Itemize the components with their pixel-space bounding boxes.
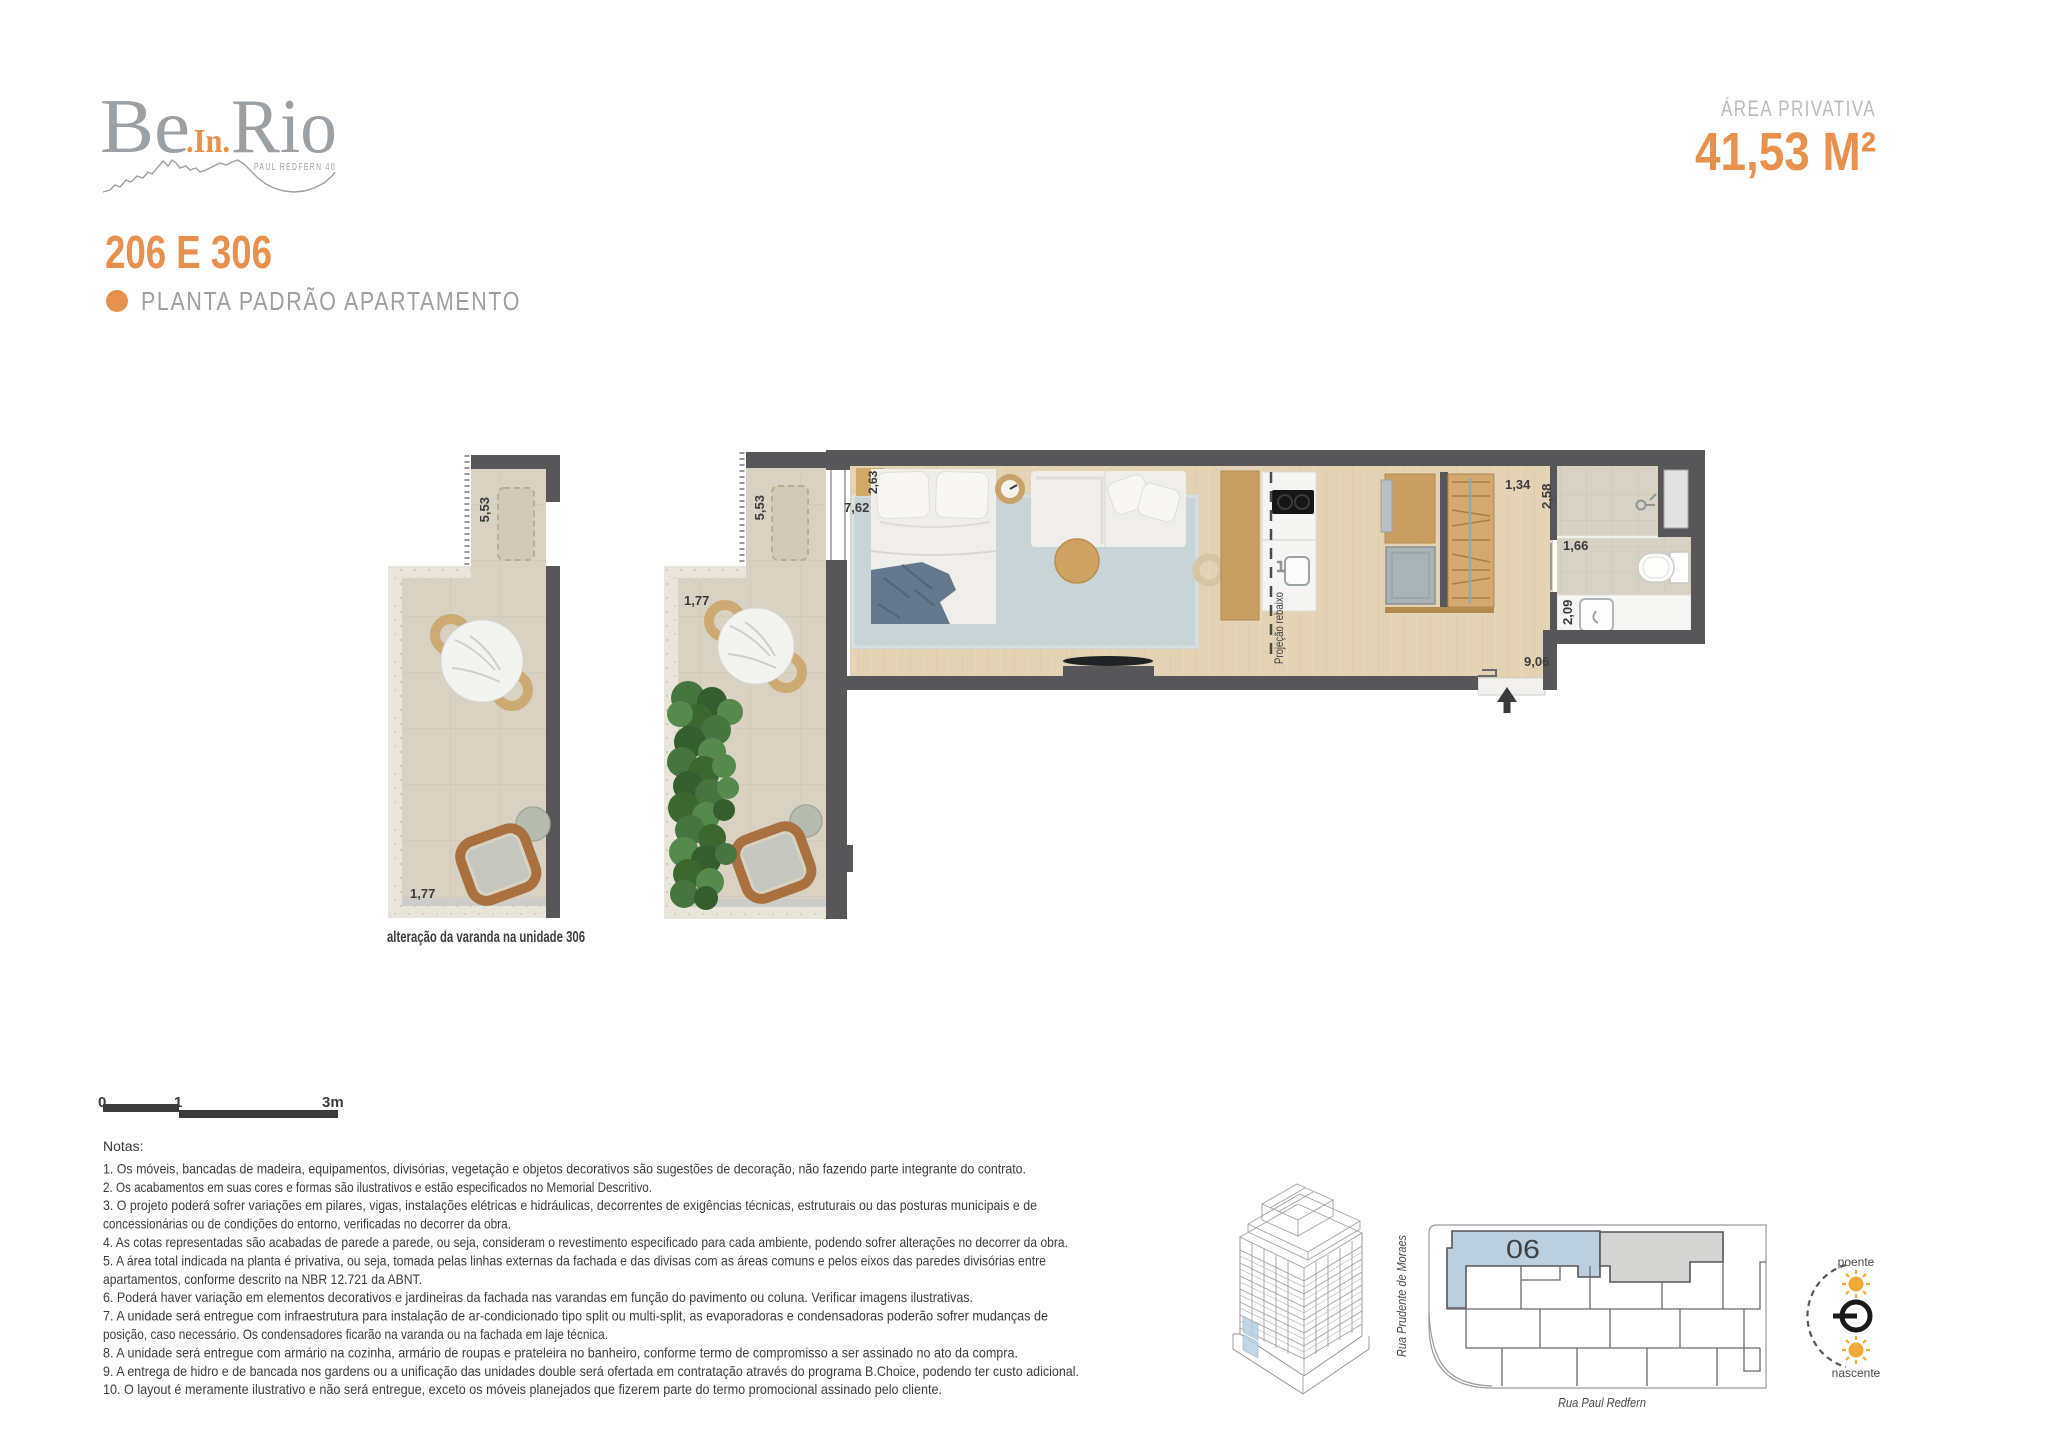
svg-text:posição, caso necessário. Os c: posição, caso necessário. Os condensador… bbox=[103, 1326, 608, 1342]
svg-text:06: 06 bbox=[1506, 1234, 1540, 1264]
svg-text:1,77: 1,77 bbox=[684, 593, 709, 608]
svg-text:PLANTA PADRÃO APARTAMENTO: PLANTA PADRÃO APARTAMENTO bbox=[141, 286, 521, 316]
svg-text:5,53: 5,53 bbox=[752, 495, 767, 520]
svg-text:Projeção rebaixo: Projeção rebaixo bbox=[1272, 592, 1286, 664]
svg-text:poente: poente bbox=[1838, 1255, 1875, 1269]
svg-text:apartamentos, conforme descrit: apartamentos, conforme descrito na NBR 1… bbox=[103, 1271, 422, 1287]
svg-text:5,53: 5,53 bbox=[477, 497, 492, 522]
svg-text:Rua Prudente de Moraes: Rua Prudente de Moraes bbox=[1395, 1235, 1409, 1357]
svg-text:1. Os móveis, bancadas de made: 1. Os móveis, bancadas de madeira, equip… bbox=[103, 1160, 1026, 1176]
svg-text:2. Os acabamentos em suas core: 2. Os acabamentos em suas cores e formas… bbox=[103, 1179, 652, 1195]
svg-text:Be: Be bbox=[100, 83, 190, 169]
svg-text:2,63: 2,63 bbox=[866, 470, 880, 494]
svg-text:ÁREA PRIVATIVA: ÁREA PRIVATIVA bbox=[1721, 96, 1876, 121]
svg-text:alteração da varanda na unidad: alteração da varanda na unidade 306 bbox=[387, 929, 585, 946]
svg-text:4. As cotas representadas são: 4. As cotas representadas são acabadas d… bbox=[103, 1234, 1068, 1250]
svg-text:1,77: 1,77 bbox=[410, 886, 435, 901]
svg-text:Rio: Rio bbox=[231, 83, 337, 169]
svg-text:9. A entrega de hidro e de ban: 9. A entrega de hidro e de bancada nos g… bbox=[103, 1363, 1079, 1379]
svg-text:2,58: 2,58 bbox=[1539, 484, 1554, 509]
svg-text:3. O projeto poderá sofrer var: 3. O projeto poderá sofrer variações em … bbox=[103, 1197, 1037, 1213]
svg-text:PAUL REDFERN 40: PAUL REDFERN 40 bbox=[254, 161, 336, 173]
svg-text:7. A unidade será entregue com: 7. A unidade será entregue com infraestr… bbox=[103, 1308, 1048, 1324]
svg-text:206 E 306: 206 E 306 bbox=[105, 226, 272, 278]
svg-text:8. A unidade será entregue com: 8. A unidade será entregue com armário n… bbox=[103, 1344, 1018, 1360]
svg-text:1,66: 1,66 bbox=[1563, 538, 1588, 553]
svg-text:6. Poderá haver variação em el: 6. Poderá haver variação em elementos de… bbox=[103, 1289, 973, 1305]
svg-text:9,06: 9,06 bbox=[1524, 654, 1549, 669]
svg-text:.In.: .In. bbox=[186, 123, 230, 160]
svg-text:10. O layout é meramente ilust: 10. O layout é meramente ilustrativo e n… bbox=[103, 1381, 942, 1397]
svg-text:concessionárias ou de condiçõe: concessionárias ou de condições do entor… bbox=[103, 1216, 511, 1232]
svg-text:nascente: nascente bbox=[1832, 1366, 1881, 1380]
svg-text:Rua Paul Redfern: Rua Paul Redfern bbox=[1558, 1396, 1646, 1410]
svg-text:1,34: 1,34 bbox=[1505, 477, 1531, 492]
svg-text:Notas:: Notas: bbox=[103, 1138, 143, 1154]
svg-text:41,53 M²: 41,53 M² bbox=[1695, 122, 1876, 182]
svg-text:7,62: 7,62 bbox=[844, 500, 869, 515]
svg-text:5. A área total indicada na pl: 5. A área total indicada na planta é pri… bbox=[103, 1252, 1046, 1268]
svg-text:3m: 3m bbox=[322, 1094, 344, 1111]
svg-text:2,09: 2,09 bbox=[1560, 600, 1575, 625]
